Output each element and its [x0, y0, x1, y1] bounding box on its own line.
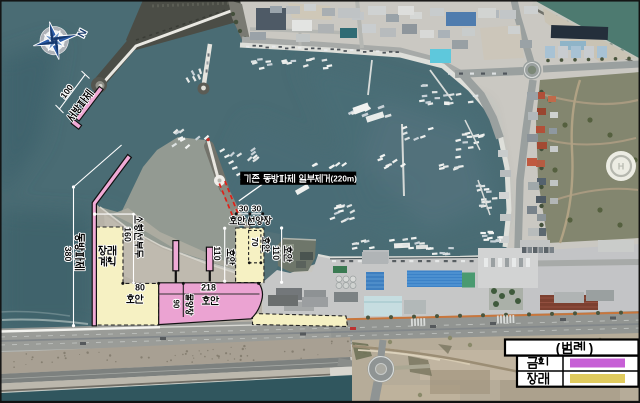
svg-text:110: 110	[271, 246, 281, 260]
svg-text:30: 30	[252, 203, 262, 213]
svg-text:70: 70	[250, 237, 259, 247]
svg-text:(: (	[556, 341, 561, 356]
svg-text:160: 160	[122, 227, 132, 242]
svg-text:80: 80	[135, 283, 145, 293]
svg-text:H: H	[618, 162, 625, 172]
svg-text:380: 380	[63, 247, 73, 262]
svg-text:218: 218	[201, 282, 216, 292]
svg-text:110: 110	[212, 246, 222, 260]
svg-text:(220m): (220m)	[331, 174, 358, 183]
svg-text:90: 90	[172, 300, 181, 309]
svg-text:30: 30	[239, 203, 249, 213]
svg-text:): )	[589, 341, 594, 356]
